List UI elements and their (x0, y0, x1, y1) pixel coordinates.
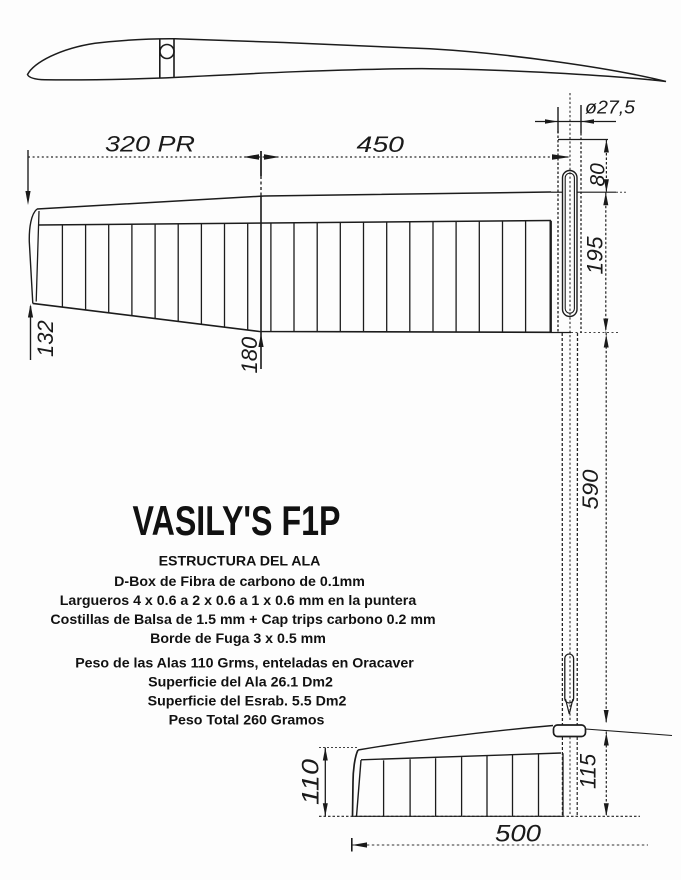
svg-text:ø27,5: ø27,5 (585, 98, 636, 118)
svg-text:Peso Total 260 Gramos: Peso Total 260 Gramos (169, 713, 325, 729)
svg-text:Costillas de Balsa de 1.5 mm +: Costillas de Balsa de 1.5 mm + Cap trips… (50, 612, 435, 628)
svg-text:Superficie del Ala 26.1 Dm2: Superficie del Ala 26.1 Dm2 (148, 675, 333, 691)
svg-text:Largueros 4 x 0.6 a 2 x 0.6 a: Largueros 4 x 0.6 a 2 x 0.6 a 1 x 0.6 mm… (60, 593, 417, 609)
svg-text:320 PR: 320 PR (105, 132, 195, 157)
svg-text:80: 80 (587, 163, 610, 187)
svg-text:132: 132 (33, 320, 58, 357)
svg-text:Peso de las Alas 110 Grms, ent: Peso de las Alas 110 Grms, enteladas en … (75, 656, 414, 672)
svg-text:450: 450 (357, 132, 405, 157)
svg-text:500: 500 (495, 821, 542, 848)
svg-text:110: 110 (298, 758, 325, 805)
svg-text:195: 195 (583, 236, 608, 275)
svg-text:180: 180 (237, 336, 262, 373)
svg-text:D-Box de Fibra de carbono de 0: D-Box de Fibra de carbono de 0.1mm (114, 574, 365, 590)
svg-text:115: 115 (576, 753, 601, 789)
svg-text:590: 590 (578, 469, 603, 510)
svg-text:Superficie del Esrab. 5.5 Dm2: Superficie del Esrab. 5.5 Dm2 (148, 694, 347, 710)
svg-text:ESTRUCTURA DEL ALA: ESTRUCTURA DEL ALA (159, 554, 321, 570)
svg-text:VASILY'S F1P: VASILY'S F1P (133, 497, 341, 544)
svg-text:Borde de Fuga 3 x 0.5 mm: Borde de Fuga 3 x 0.5 mm (150, 631, 326, 647)
